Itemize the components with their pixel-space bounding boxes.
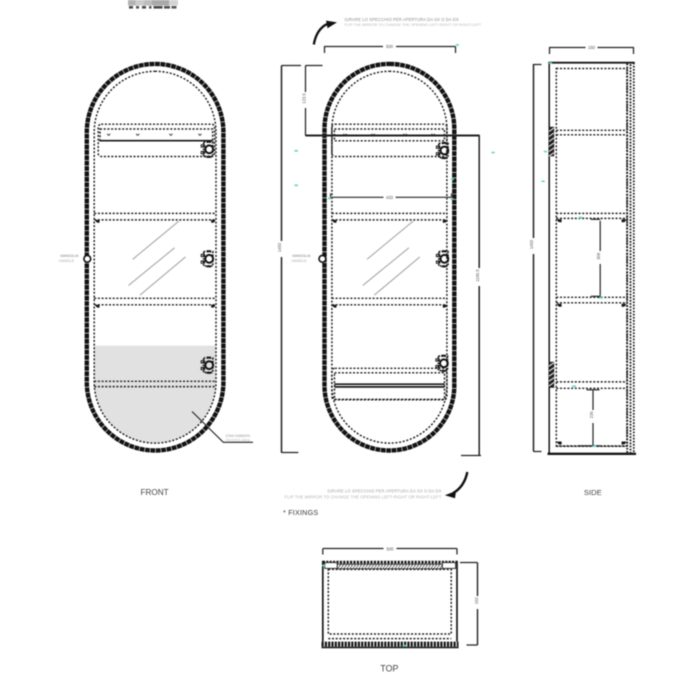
svg-text:308: 308 bbox=[596, 252, 601, 260]
svg-text:TOP: TOP bbox=[380, 664, 398, 674]
svg-text:500: 500 bbox=[387, 546, 395, 551]
svg-text:MANIGLIA: MANIGLIA bbox=[292, 254, 311, 258]
svg-text:500: 500 bbox=[386, 44, 394, 49]
svg-text:SIDE: SIDE bbox=[584, 488, 602, 497]
svg-text:433: 433 bbox=[386, 195, 394, 200]
svg-text:HANDLE: HANDLE bbox=[291, 259, 307, 263]
svg-text:1450: 1450 bbox=[529, 239, 534, 249]
svg-text:ZONA SABBIATA: ZONA SABBIATA bbox=[226, 434, 252, 438]
svg-text:FRONT: FRONT bbox=[140, 488, 168, 497]
svg-text:FLIP THE MIRROR TO CHANGE THE: FLIP THE MIRROR TO CHANGE THE OPENING LE… bbox=[345, 23, 482, 27]
svg-text:MANIGLIA: MANIGLIA bbox=[60, 254, 79, 258]
svg-text:GIRARE LO SPECCHIO PER APERTUR: GIRARE LO SPECCHIO PER APERTURA DA SX O … bbox=[345, 17, 459, 22]
svg-text:FLIP THE MIRROR TO CHANGE THE: FLIP THE MIRROR TO CHANGE THE OPENING LE… bbox=[285, 494, 442, 499]
svg-text:150: 150 bbox=[588, 45, 596, 50]
svg-text:HANDLE: HANDLE bbox=[59, 259, 75, 263]
svg-text:1450: 1450 bbox=[277, 242, 282, 252]
svg-text:123.5: 123.5 bbox=[302, 93, 307, 104]
svg-text:* FIXINGS: * FIXINGS bbox=[283, 508, 318, 517]
svg-text:FROSTED AREA: FROSTED AREA bbox=[226, 439, 251, 443]
svg-text:236: 236 bbox=[589, 411, 594, 419]
svg-text:GIRARE LO SPECCHIO PER APERTUR: GIRARE LO SPECCHIO PER APERTURA DA SX O … bbox=[327, 488, 441, 493]
svg-text:1166.5: 1166.5 bbox=[475, 269, 480, 282]
svg-text:150: 150 bbox=[474, 597, 479, 605]
